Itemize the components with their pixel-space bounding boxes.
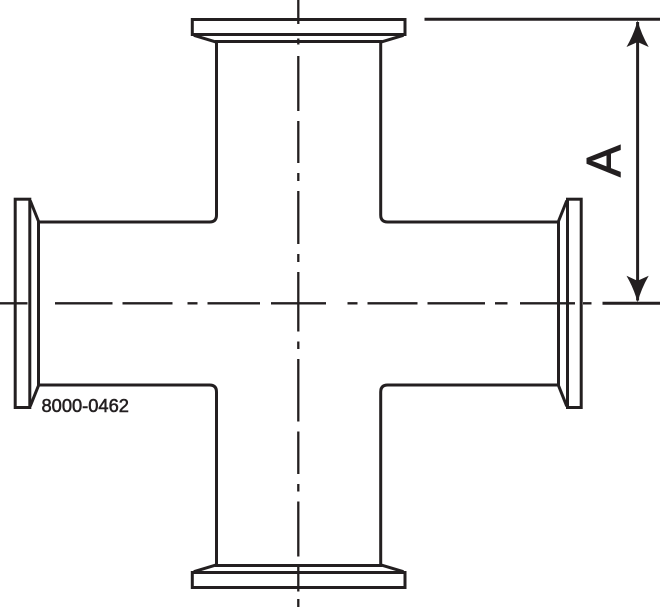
svg-text:A: A [578,145,631,177]
svg-text:8000-0462: 8000-0462 [42,395,129,416]
